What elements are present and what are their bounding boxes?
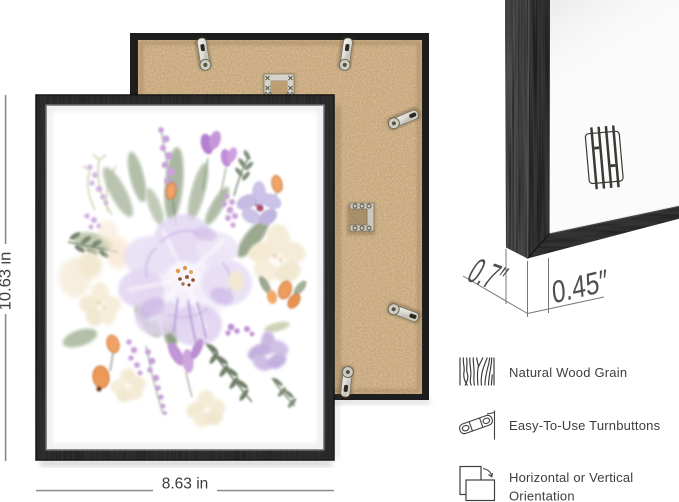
svg-text:8.63 in: 8.63 in [162, 476, 209, 493]
svg-text:Easy-To-Use Turnbuttons: Easy-To-Use Turnbuttons [509, 418, 661, 433]
svg-text:Orientation: Orientation [509, 489, 575, 502]
svg-text:Natural Wood Grain: Natural Wood Grain [509, 365, 627, 380]
svg-text:10.63 in: 10.63 in [0, 252, 15, 311]
svg-text:Horizontal or Vertical: Horizontal or Vertical [509, 470, 633, 485]
